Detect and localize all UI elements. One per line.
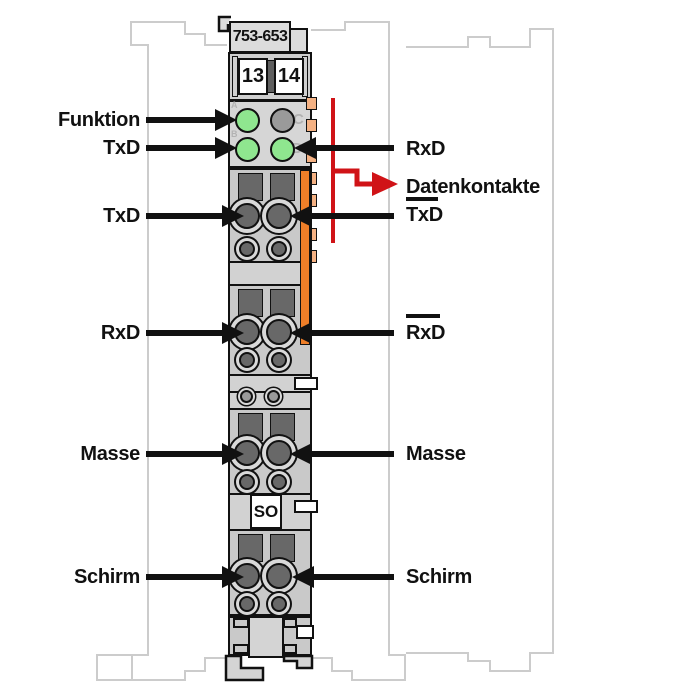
label-rxd-inverted: RxD [406,320,445,346]
outer-left-neighbor-outline [97,655,131,680]
label-schirm-left: Schirm [0,564,140,590]
arrow-masse-right [290,442,394,466]
wiring-diagram-753-653: 753-653 13 14 A B C D [0,0,700,700]
negation-bar-txd [406,197,438,201]
terminal-number-14: 14 [274,58,304,95]
tool-port [239,474,255,490]
arrow-rxd-inverted [290,321,394,345]
part-number: 753-653 [233,28,288,45]
label-funktion: Funktion [0,107,140,133]
latch-detail [283,618,297,628]
wire-port-txd-right [266,203,292,229]
terminal-number-13: 13 [238,58,268,95]
label-txd-inverted: TxD [406,202,443,228]
clamp-opening [270,413,295,441]
clamp-opening [238,173,263,201]
latch-detail [283,644,297,654]
label-schirm-right: Schirm [406,564,472,590]
led-funktion-green [235,108,260,133]
tool-port [239,352,255,368]
label-rxd: RxD [0,320,140,346]
latch-notch [294,500,318,513]
part-number-plate: 753-653 [229,21,291,53]
clamp-opening [270,534,295,562]
module-foot-right [284,656,312,668]
clamp-opening [238,289,263,317]
label-masse-left: Masse [0,441,140,467]
label-txd-led: TxD [0,135,140,161]
arrow-masse-left [146,442,244,466]
clamp-opening [238,413,263,441]
latch-detail [233,644,249,654]
latch-slider [248,616,284,658]
arrow-txd [146,204,244,228]
arrow-schirm-left [146,565,244,589]
latch-notch [294,377,318,390]
wire-port-schirm-right [266,563,292,589]
arrow-rxd [146,321,244,345]
tool-port [239,241,255,257]
marking-text: SO [254,502,279,521]
power-contact-strip [300,170,310,345]
label-txd: TxD [0,203,140,229]
arrow-txd-led [146,136,237,160]
led-rxd-green [270,137,295,162]
tool-port [271,474,287,490]
test-point [267,390,280,403]
arrow-rxd-led [294,136,394,160]
cap-right-step [288,28,308,53]
clamp-opening [238,534,263,562]
din-rail-outline-layer [0,0,700,700]
tool-port [271,241,287,257]
wire-port-rxd-right [266,319,292,345]
test-point [240,390,253,403]
data-contact-tab [306,119,317,132]
arrow-schirm-right [292,565,394,589]
tool-port [271,596,287,612]
tool-port [239,596,255,612]
latch-detail [233,618,249,628]
terminal-13-label: 13 [242,65,264,87]
arrow-txd-inverted [290,204,394,228]
clamp-opening [270,289,295,317]
terminal-14-label: 14 [278,65,300,87]
label-masse-right: Masse [406,441,466,467]
marking-plate: SO [250,494,282,529]
wire-port-masse-right [266,440,292,466]
led-c-off [270,108,295,133]
latch-notch [296,625,314,639]
data-contact-tab [306,97,317,110]
clamp-opening [270,173,295,201]
led-txd-green [235,137,260,162]
negation-bar-rxd [406,314,440,318]
label-rxd-led: RxD [406,136,445,162]
tool-port [271,352,287,368]
arrow-funktion [146,108,237,132]
module-foot-left [226,656,263,680]
